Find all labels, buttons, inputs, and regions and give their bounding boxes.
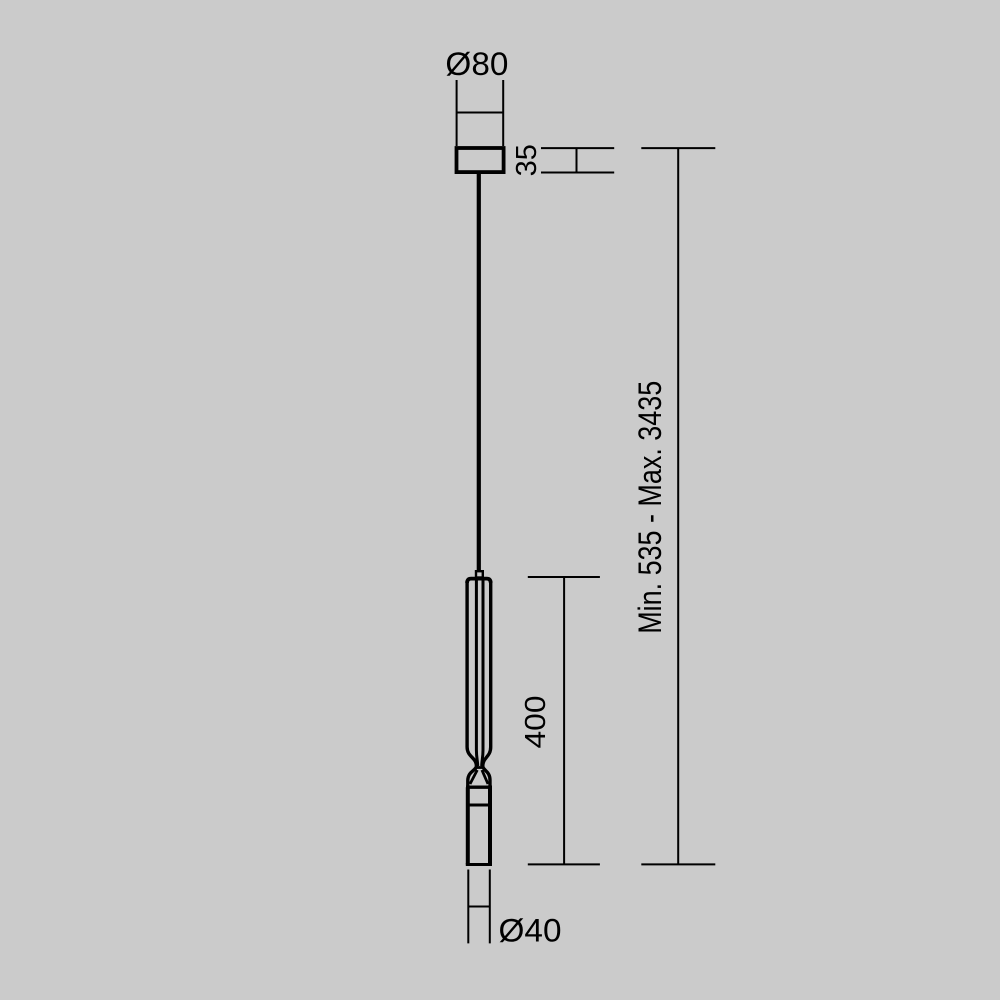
svg-text:400: 400 <box>520 696 552 749</box>
svg-text:35: 35 <box>511 144 543 176</box>
svg-text:Ø80: Ø80 <box>445 46 508 82</box>
svg-text:Ø40: Ø40 <box>499 913 562 949</box>
svg-text:Min. 535 - Max. 3435: Min. 535 - Max. 3435 <box>632 381 668 634</box>
